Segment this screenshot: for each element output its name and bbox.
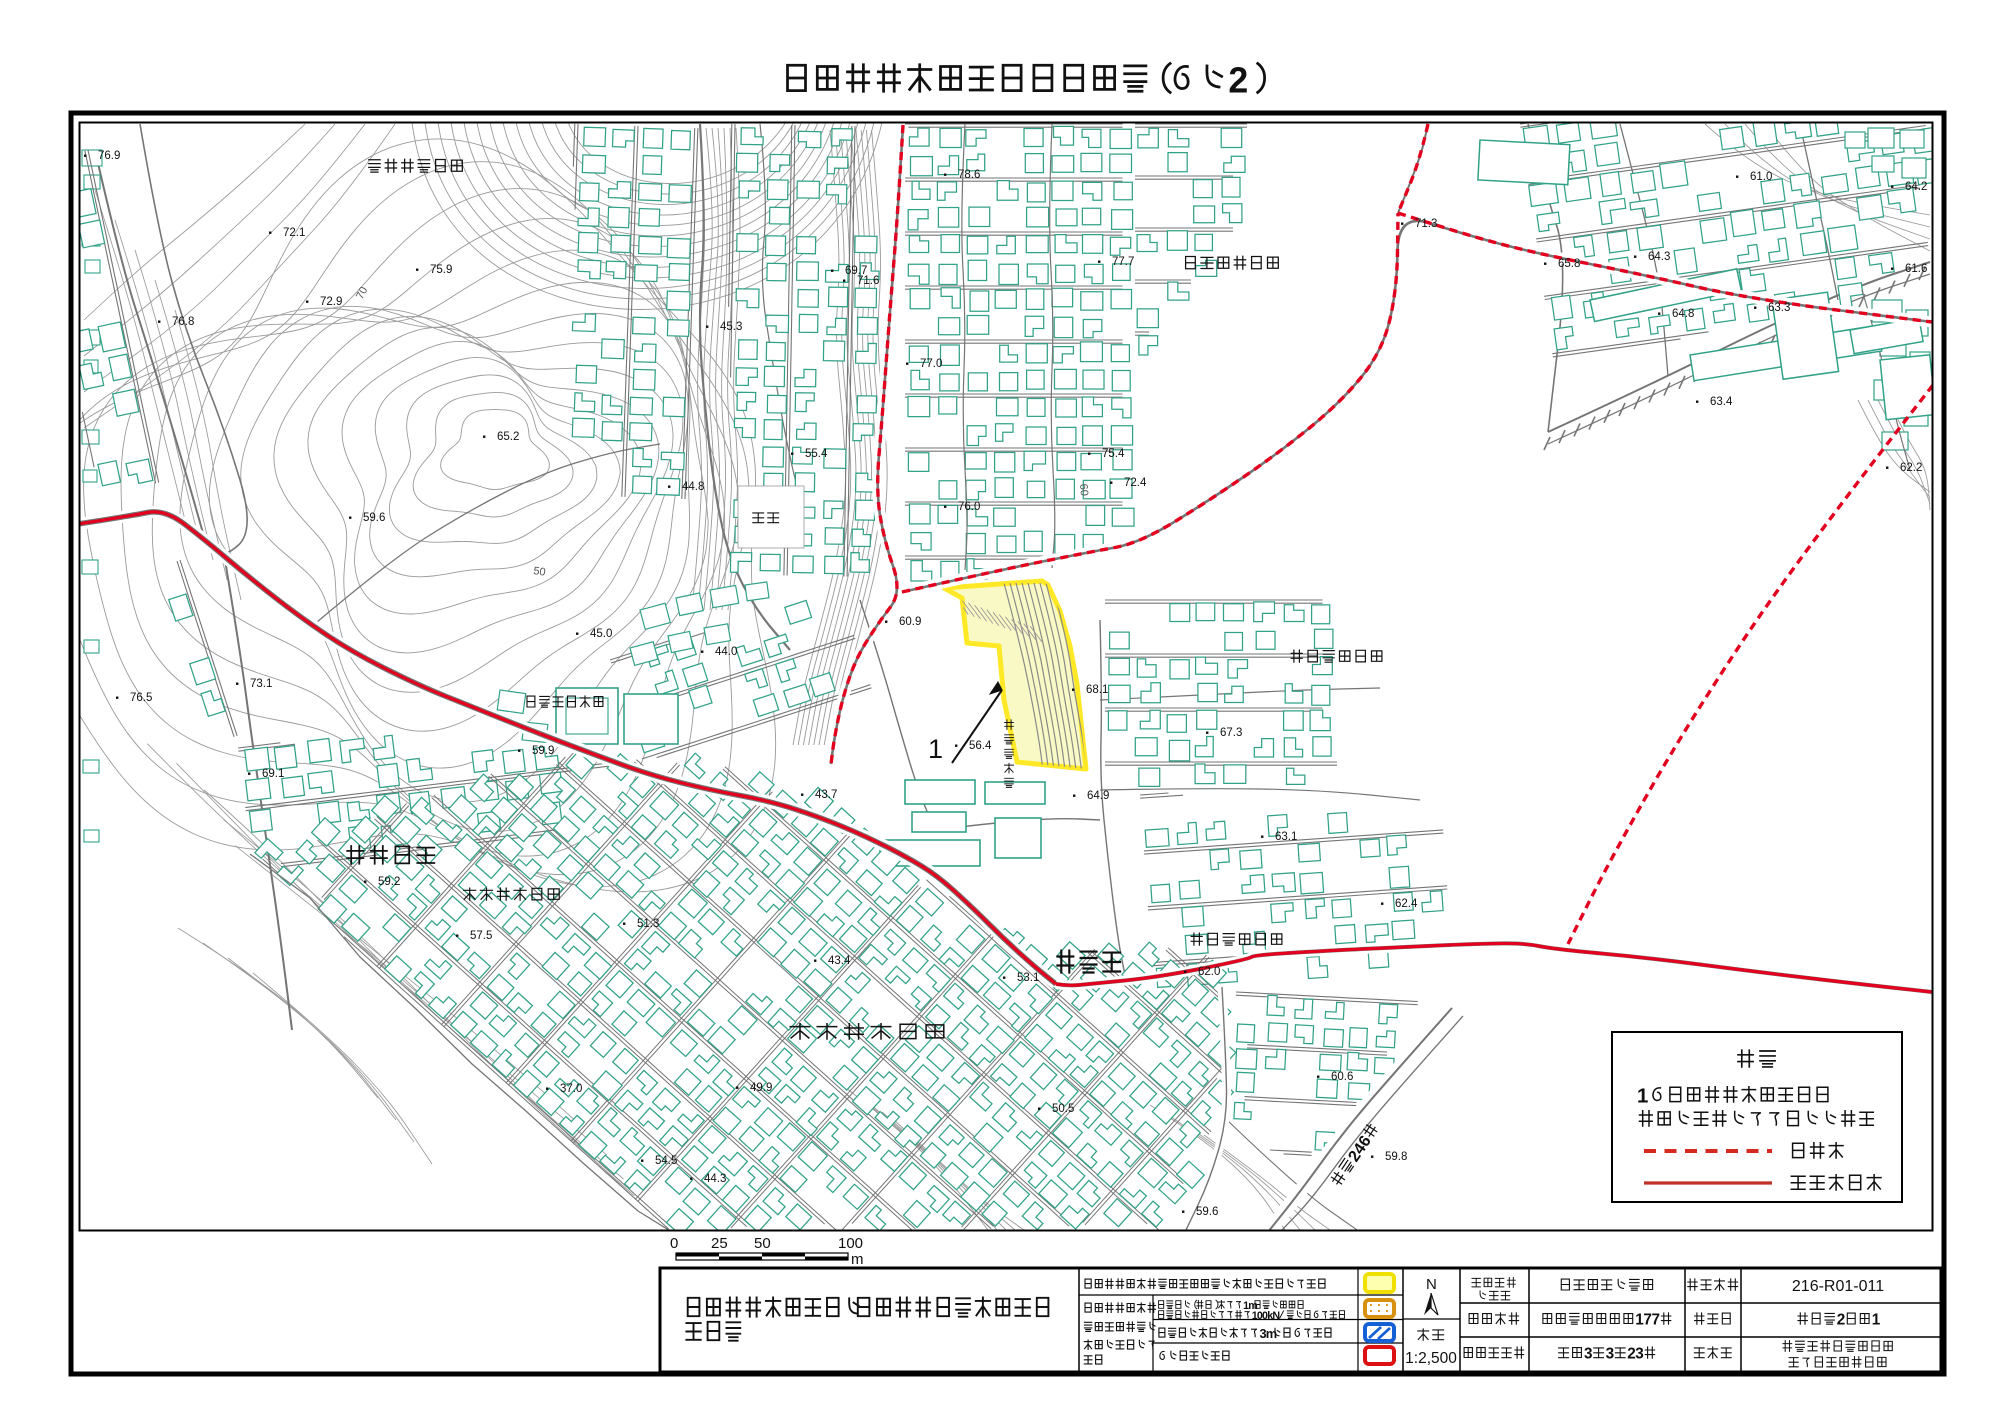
svg-text:N: N <box>1272 1310 1280 1322</box>
svg-text:44.8: 44.8 <box>682 481 704 493</box>
svg-text:m: m <box>851 1251 864 1268</box>
svg-text:3: 3 <box>1635 1346 1644 1363</box>
svg-text:1: 1 <box>1637 1086 1648 1108</box>
svg-text:43.4: 43.4 <box>828 955 851 967</box>
svg-text:54.5: 54.5 <box>655 1155 677 1167</box>
svg-text:44.3: 44.3 <box>704 1173 726 1185</box>
svg-text:67.3: 67.3 <box>1220 727 1242 739</box>
svg-text:50: 50 <box>754 1235 771 1252</box>
svg-text:61.6: 61.6 <box>1905 263 1927 275</box>
svg-text:63.1: 63.1 <box>1275 831 1297 843</box>
svg-text:50.5: 50.5 <box>1052 1103 1074 1115</box>
svg-text:63.3: 63.3 <box>1768 302 1790 314</box>
svg-text:62.2: 62.2 <box>1900 462 1922 474</box>
svg-text:76.8: 76.8 <box>172 316 194 328</box>
svg-text:68.1: 68.1 <box>1086 684 1108 696</box>
svg-text:59.9: 59.9 <box>532 745 554 757</box>
svg-text:49.9: 49.9 <box>750 1082 772 1094</box>
svg-text:65.2: 65.2 <box>497 431 519 443</box>
svg-text:55.4: 55.4 <box>805 448 828 460</box>
svg-text:37.0: 37.0 <box>560 1083 582 1095</box>
svg-text:51.3: 51.3 <box>637 918 659 930</box>
svg-text:62.0: 62.0 <box>1198 966 1220 978</box>
svg-text:76.5: 76.5 <box>130 692 152 704</box>
svg-text:43.7: 43.7 <box>815 789 837 801</box>
svg-text:64.8: 64.8 <box>1672 308 1694 320</box>
svg-text:72.9: 72.9 <box>320 296 342 308</box>
svg-text:44.0: 44.0 <box>715 646 737 658</box>
svg-text:60: 60 <box>1077 483 1090 496</box>
svg-text:61.0: 61.0 <box>1750 171 1772 183</box>
svg-text:7: 7 <box>1652 1312 1661 1329</box>
svg-text:77.7: 77.7 <box>1112 256 1134 268</box>
svg-text:78.6: 78.6 <box>958 169 980 181</box>
svg-text:76.0: 76.0 <box>958 501 980 513</box>
svg-text:59.6: 59.6 <box>363 512 385 524</box>
svg-text:73.1: 73.1 <box>250 678 272 690</box>
svg-text:60.9: 60.9 <box>899 616 921 628</box>
svg-text:60.6: 60.6 <box>1331 1071 1353 1083</box>
svg-text:45.3: 45.3 <box>720 321 742 333</box>
svg-text:64.3: 64.3 <box>1648 251 1670 263</box>
svg-text:3: 3 <box>1584 1346 1593 1363</box>
svg-text:75.4: 75.4 <box>1102 448 1125 460</box>
svg-text:59.6: 59.6 <box>1196 1206 1218 1218</box>
svg-text:25: 25 <box>711 1235 728 1252</box>
svg-text:2: 2 <box>1228 60 1248 100</box>
svg-text:64.9: 64.9 <box>1087 790 1109 802</box>
svg-text:216-R01-011: 216-R01-011 <box>1792 1278 1884 1295</box>
svg-text:69.7: 69.7 <box>845 265 867 277</box>
svg-text:1: 1 <box>928 734 943 764</box>
svg-text:59.2: 59.2 <box>378 876 400 888</box>
svg-text:3: 3 <box>1606 1346 1615 1363</box>
svg-text:57.5: 57.5 <box>470 930 492 942</box>
svg-text:1: 1 <box>1872 1312 1881 1329</box>
svg-text:65.8: 65.8 <box>1558 258 1580 270</box>
svg-text:72.4: 72.4 <box>1124 477 1147 489</box>
svg-text:2: 2 <box>1837 1312 1846 1329</box>
svg-text:76.9: 76.9 <box>98 150 120 162</box>
svg-text:100: 100 <box>838 1235 863 1252</box>
svg-text:45.0: 45.0 <box>590 628 612 640</box>
svg-text:64.2: 64.2 <box>1905 181 1927 193</box>
svg-text:50: 50 <box>533 565 547 579</box>
svg-text:72.1: 72.1 <box>283 227 305 239</box>
svg-text:53.1: 53.1 <box>1017 972 1039 984</box>
svg-text:69.1: 69.1 <box>262 768 284 780</box>
svg-text:77.0: 77.0 <box>920 358 942 370</box>
svg-text:0: 0 <box>670 1235 678 1252</box>
svg-text:62.4: 62.4 <box>1395 898 1418 910</box>
svg-text:56.4: 56.4 <box>969 740 992 752</box>
svg-text:71.3: 71.3 <box>1415 218 1437 230</box>
svg-text:63.4: 63.4 <box>1710 396 1733 408</box>
svg-text:N: N <box>1426 1276 1437 1293</box>
svg-text:1:2,500: 1:2,500 <box>1405 1350 1457 1367</box>
svg-text:59.8: 59.8 <box>1385 1151 1407 1163</box>
svg-text:75.9: 75.9 <box>430 264 452 276</box>
